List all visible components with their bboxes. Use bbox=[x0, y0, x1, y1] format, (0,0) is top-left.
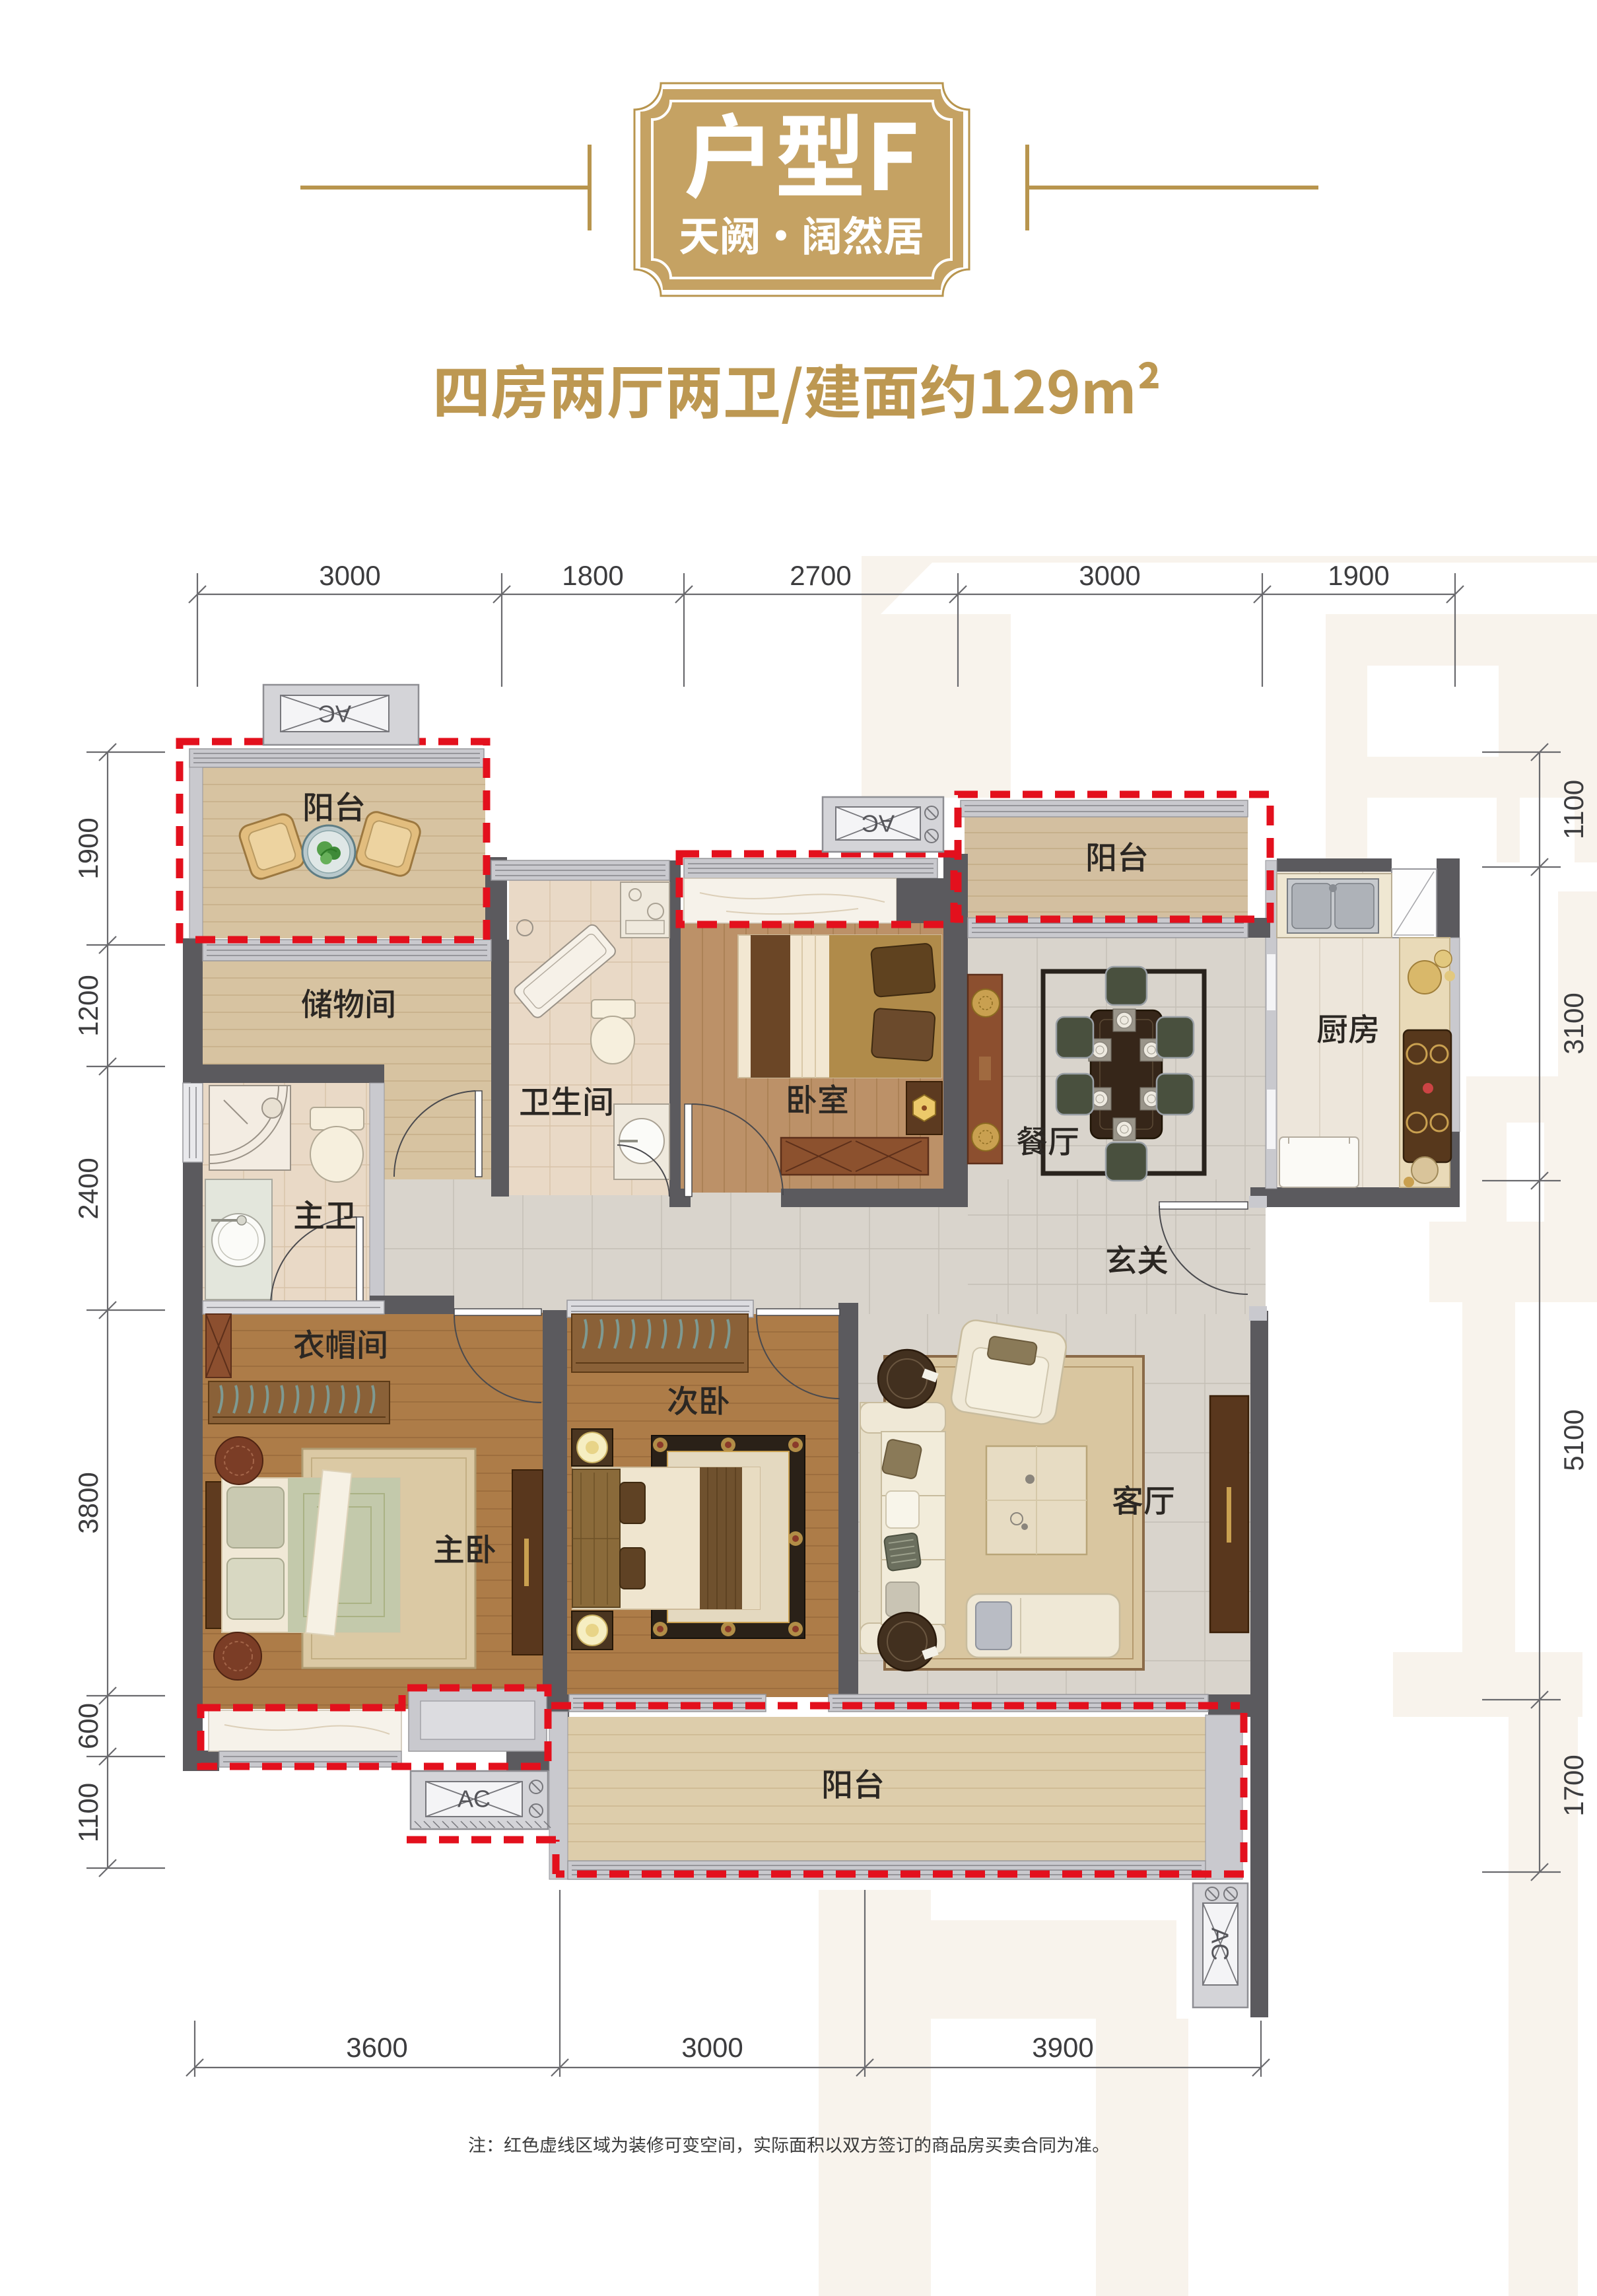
svg-text:2700: 2700 bbox=[790, 560, 851, 591]
svg-text:AC: AC bbox=[458, 1786, 491, 1813]
svg-text:AC: AC bbox=[1207, 1928, 1234, 1961]
svg-text:AC: AC bbox=[862, 810, 895, 837]
svg-text:3100: 3100 bbox=[1558, 992, 1589, 1054]
svg-text:1900: 1900 bbox=[1328, 560, 1389, 591]
svg-text:1100: 1100 bbox=[73, 1783, 104, 1842]
svg-text:600: 600 bbox=[73, 1703, 104, 1749]
svg-text:5100: 5100 bbox=[1558, 1409, 1589, 1471]
svg-text:3000: 3000 bbox=[319, 560, 380, 591]
svg-text:AC: AC bbox=[318, 701, 351, 728]
svg-text:3000: 3000 bbox=[681, 2032, 743, 2063]
svg-text:1100: 1100 bbox=[1558, 780, 1589, 839]
svg-text:1200: 1200 bbox=[73, 975, 104, 1036]
svg-text:2400: 2400 bbox=[73, 1158, 104, 1219]
svg-text:3000: 3000 bbox=[1079, 560, 1140, 591]
svg-text:3900: 3900 bbox=[1032, 2032, 1093, 2063]
svg-text:3600: 3600 bbox=[346, 2032, 407, 2063]
svg-text:1900: 1900 bbox=[73, 818, 104, 879]
svg-text:1700: 1700 bbox=[1558, 1755, 1589, 1816]
svg-text:3800: 3800 bbox=[73, 1472, 104, 1533]
svg-text:1800: 1800 bbox=[562, 560, 623, 591]
